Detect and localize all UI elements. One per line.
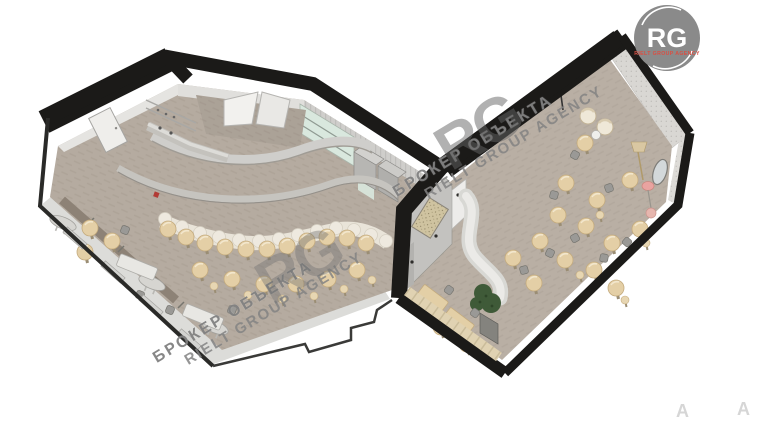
logo-subtitle: RIELT GROUP AGENCY	[634, 51, 700, 57]
pink-lamp-shade	[642, 182, 654, 191]
chair	[519, 265, 529, 275]
pouf	[646, 208, 656, 218]
floor-lamp-shade	[631, 142, 647, 152]
floorplan-render: БРОКЕР ОБЪЕКТА RIELT GROUP AGENCY БРОКЕР…	[0, 0, 768, 440]
left-unit	[40, 57, 441, 366]
armchair	[580, 108, 596, 124]
rg-logo-badge: RG RIELT GROUP AGENCY	[632, 3, 702, 73]
chair	[599, 253, 608, 262]
round-table	[608, 280, 624, 299]
right-unit	[399, 36, 690, 373]
rg-logo: RG RIELT GROUP AGENCY	[632, 3, 702, 73]
stool	[621, 296, 629, 307]
chair	[549, 190, 559, 200]
wall-sconce-icon	[410, 260, 413, 263]
wall-sconce-icon	[434, 234, 437, 237]
logo-monogram: RG	[647, 23, 688, 53]
side-table	[592, 131, 601, 140]
